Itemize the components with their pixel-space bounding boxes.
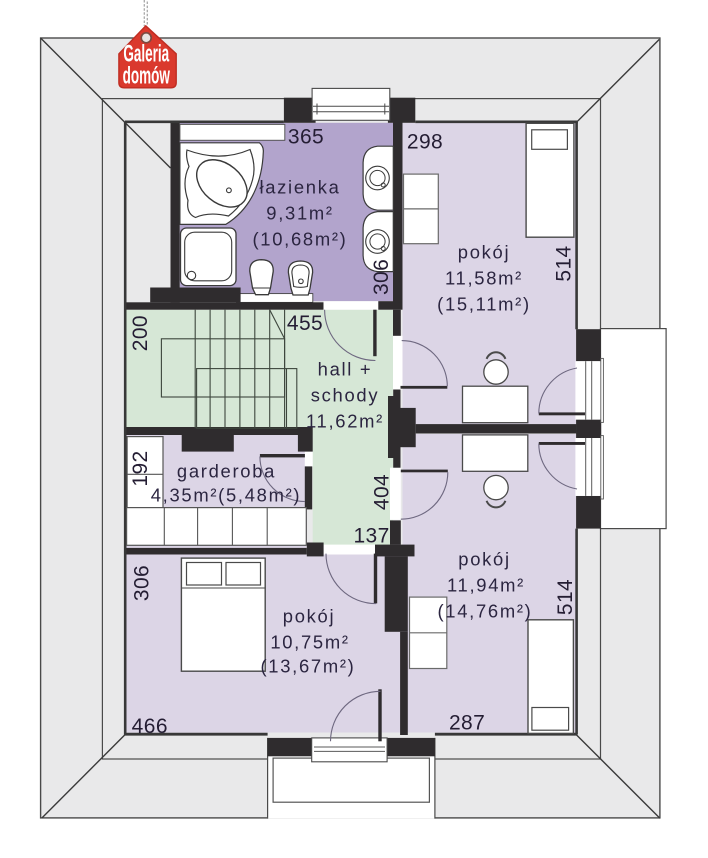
svg-text:192: 192	[129, 450, 152, 486]
svg-text:pokój: pokój	[458, 549, 510, 570]
svg-text:365: 365	[288, 126, 324, 149]
svg-text:(10,68m²): (10,68m²)	[252, 229, 347, 250]
svg-text:306: 306	[370, 259, 393, 295]
svg-text:(13,67m²): (13,67m²)	[260, 656, 355, 677]
svg-text:schody: schody	[311, 385, 379, 406]
svg-text:287: 287	[449, 712, 485, 735]
svg-text:domów: domów	[123, 62, 171, 89]
svg-text:11,58m²: 11,58m²	[445, 268, 523, 289]
svg-text:pokój: pokój	[283, 606, 335, 627]
svg-text:11,94m²: 11,94m²	[447, 575, 525, 596]
svg-text:200: 200	[129, 315, 152, 351]
svg-text:404: 404	[371, 474, 394, 510]
svg-text:(14,76m²): (14,76m²)	[437, 601, 532, 622]
svg-text:455: 455	[287, 312, 323, 335]
svg-text:514: 514	[554, 579, 577, 615]
svg-text:hall +: hall +	[318, 359, 373, 380]
svg-text:11,62m²: 11,62m²	[306, 411, 384, 432]
svg-text:514: 514	[553, 245, 576, 281]
svg-text:137: 137	[353, 525, 389, 548]
svg-text:(15,11m²): (15,11m²)	[437, 294, 531, 315]
svg-text:9,31m²: 9,31m²	[266, 203, 333, 224]
svg-text:pokój: pokój	[458, 242, 510, 263]
svg-text:10,75m²: 10,75m²	[270, 632, 349, 653]
svg-text:łazienka: łazienka	[259, 177, 340, 198]
svg-text:4,35m²(5,48m²): 4,35m²(5,48m²)	[151, 484, 302, 505]
svg-text:garderoba: garderoba	[177, 460, 276, 481]
svg-text:466: 466	[132, 715, 168, 738]
svg-text:306: 306	[130, 565, 153, 601]
svg-text:298: 298	[407, 131, 443, 154]
